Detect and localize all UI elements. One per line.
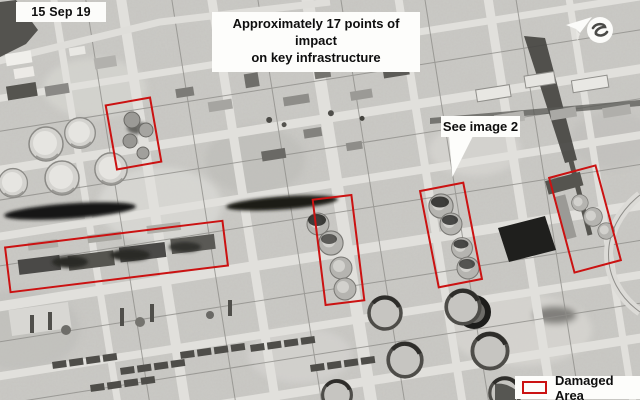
legend-label: Damaged Area bbox=[555, 373, 640, 400]
damaged-area-swatch-icon bbox=[522, 381, 547, 394]
see-image-2-label: See image 2 bbox=[441, 116, 520, 137]
legend: Damaged Area bbox=[515, 376, 640, 399]
impact-title: Approximately 17 points of impact on key… bbox=[212, 12, 420, 72]
date-label: 15 Sep 19 bbox=[16, 2, 106, 22]
impact-title-line1: Approximately 17 points of impact bbox=[212, 16, 420, 50]
watermark bbox=[562, 11, 620, 51]
annotated-satellite-photo: 15 Sep 19 Approximately 17 points of imp… bbox=[0, 0, 640, 400]
wave-logo-circle-icon bbox=[587, 17, 613, 43]
impact-title-line2: on key infrastructure bbox=[212, 50, 420, 67]
